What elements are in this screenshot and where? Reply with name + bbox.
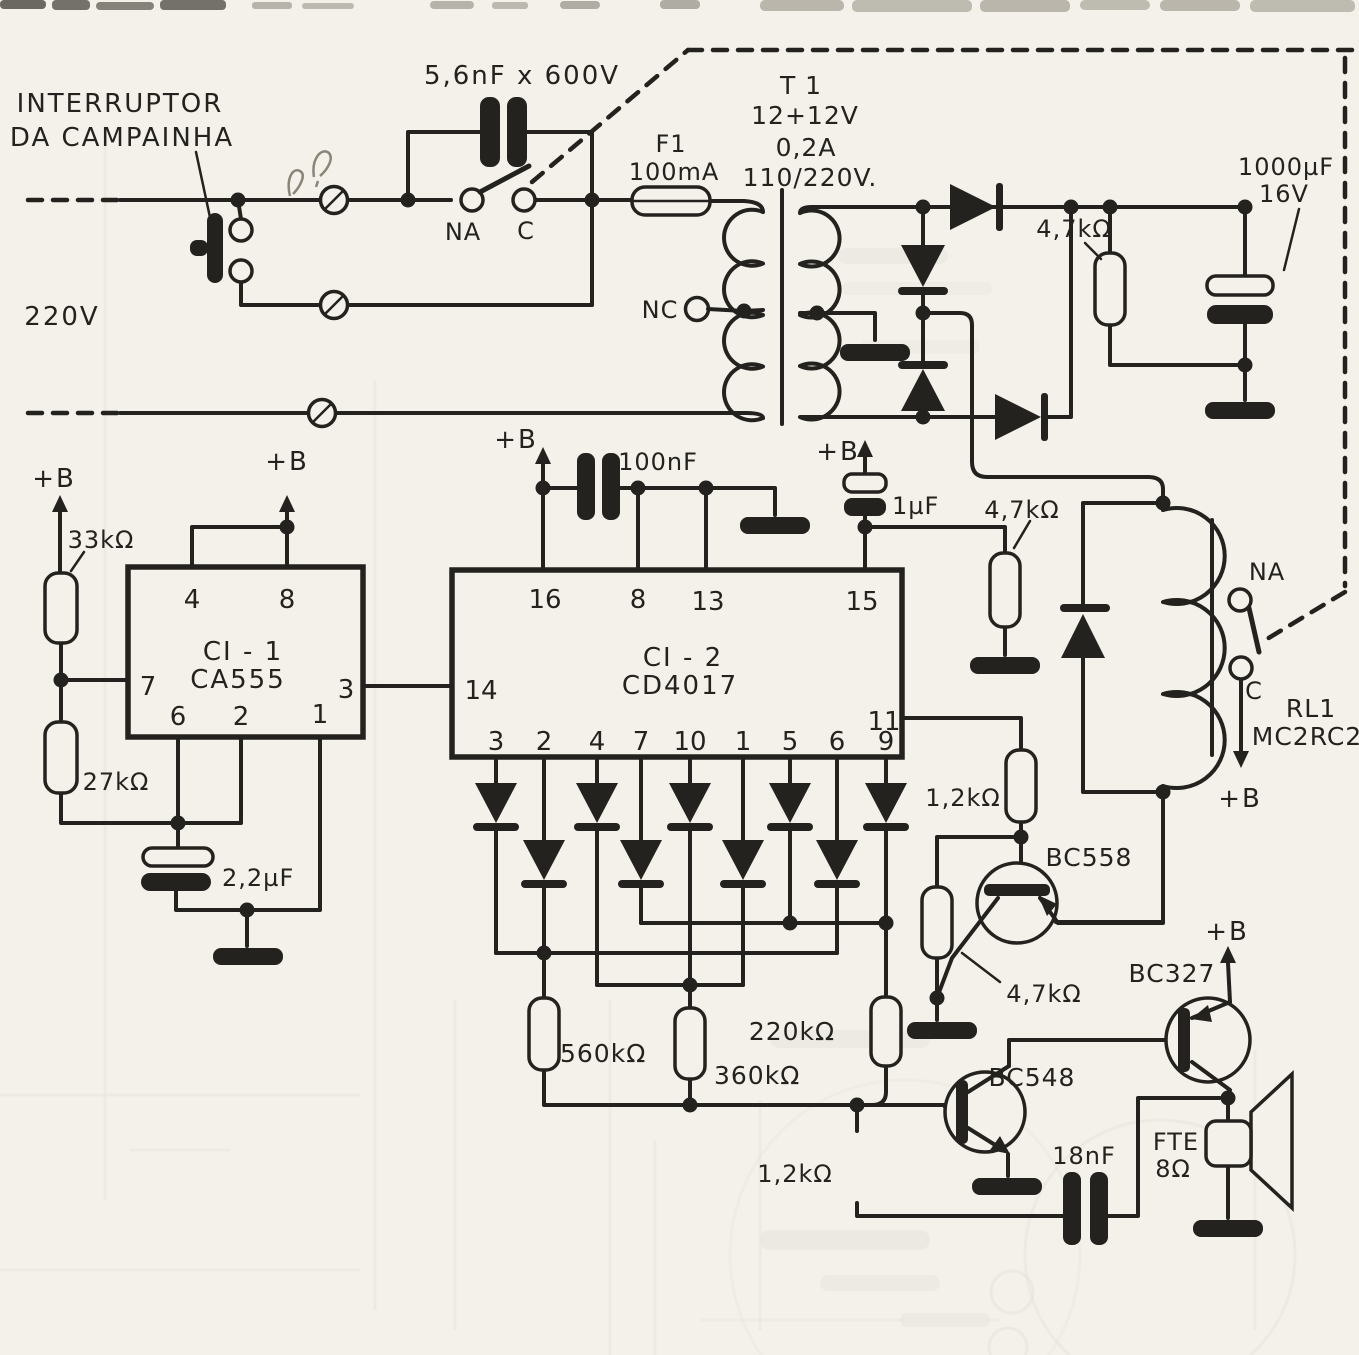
resistor-4k7-bias-label: 4,7kΩ: [1006, 980, 1081, 1008]
bc548-label: BC548: [989, 1063, 1076, 1092]
relay-contact-mirror-switch: [461, 166, 535, 211]
transformer-secondary-label: 12+12V: [751, 101, 859, 130]
ic1-designator-label: CI - 1: [203, 637, 283, 667]
coupling-capacitor: [1063, 1172, 1108, 1245]
doorbell-circuit-schematic: INTERRUPTOR DA CAMPAINHA 220V 5,6nF x 60…: [0, 0, 1359, 1355]
ic1-part-label: CA555: [190, 665, 286, 695]
bell-switch-label-line2: DA CAMPAINHA: [10, 123, 234, 153]
ic1-pin3: 3: [338, 675, 355, 705]
reset-capacitor: [844, 474, 886, 516]
coupling-cap-label: 18nF: [1052, 1142, 1116, 1170]
relay-na-label: NA: [1249, 558, 1285, 586]
supply-label: +B: [494, 425, 538, 455]
resistor-220k: [871, 997, 901, 1066]
ic1-pin7: 7: [140, 672, 157, 702]
resistor-27k-label: 27kΩ: [83, 768, 150, 796]
resistor-1k2-relay-label: 1,2kΩ: [925, 784, 1000, 812]
ic2-pin14: 14: [464, 676, 497, 706]
decoupling-cap-label: 100nF: [618, 448, 698, 476]
counter-section: CI - 2 CD4017 16 8 13 15 14 11 3 2 4 7 1…: [452, 425, 1060, 757]
rectifier-diode: [950, 184, 996, 230]
relay-part-label: MC2RC2: [1252, 722, 1359, 751]
ic1-pin8: 8: [279, 585, 296, 615]
suppression-cap-label: 5,6nF x 600V: [424, 61, 620, 91]
supply-label: +B: [1205, 917, 1249, 947]
ground-bar: [970, 657, 1040, 674]
relay-contact-c: [1230, 657, 1252, 679]
screw-terminal: [321, 292, 348, 319]
resistor-27k: [45, 722, 77, 793]
ic2-pin2: 2: [536, 727, 553, 757]
resistor-1k2-relay: [1006, 750, 1036, 822]
supply-arrow: [279, 495, 295, 512]
label-callout: [71, 552, 84, 571]
supply-label: +B: [265, 447, 309, 477]
transistor-bc327: [1166, 998, 1250, 1098]
relay-c-label: C: [1245, 677, 1263, 705]
ic1-pin6: 6: [170, 702, 187, 732]
speaker-impedance-label: 8Ω: [1155, 1155, 1191, 1183]
fuse: [632, 187, 710, 215]
ic2-part-label: CD4017: [622, 671, 738, 701]
ground-bar: [1193, 1220, 1263, 1237]
mains-input-section: INTERRUPTOR DA CAMPAINHA 220V 5,6nF x 60…: [10, 61, 763, 427]
label-callout: [196, 152, 211, 222]
switch-c-label: C: [517, 217, 535, 245]
label-callout: [962, 953, 1000, 982]
ic2-pin3: 3: [488, 727, 505, 757]
pencil-scribble: [289, 170, 303, 196]
supply-arrow: [52, 495, 68, 512]
resistor-4k7-bias: [922, 887, 952, 958]
bc558-label: BC558: [1046, 843, 1133, 872]
bell-pushbutton: [190, 213, 252, 283]
resistor-220k-label: 220kΩ: [749, 1017, 835, 1046]
filter-cap-voltage-label: 16V: [1259, 180, 1309, 208]
clamp-diode-lower: [901, 369, 945, 411]
resistor-560k: [529, 998, 559, 1070]
ic2-pin10: 10: [673, 727, 706, 757]
ic2-pin13: 13: [691, 587, 724, 617]
wires: [937, 503, 1241, 1020]
ic1-pin4: 4: [184, 585, 201, 615]
ic1-pin1: 1: [312, 700, 329, 730]
ic1-pin2: 2: [233, 702, 250, 732]
ic2-designator-label: CI - 2: [643, 643, 723, 673]
pencil-scribble: [313, 151, 330, 187]
bleeder-resistor: [1095, 253, 1125, 325]
filter-cap-label: 1000µF: [1238, 153, 1334, 181]
ground-bar: [840, 344, 910, 361]
reset-resistor: [990, 553, 1020, 627]
ic2-pin15: 15: [845, 587, 878, 617]
ic2-pin5: 5: [782, 727, 799, 757]
top-edge-print-remnants: [0, 0, 1355, 12]
relay-coil: [1163, 508, 1225, 788]
ic2-pin9: 9: [878, 727, 895, 757]
ic2-pin4: 4: [589, 727, 606, 757]
resistor-33k: [45, 573, 77, 643]
timing-capacitor: [141, 848, 213, 891]
label-callout: [1284, 209, 1299, 270]
ic2-pin16: 16: [528, 585, 561, 615]
ground-bar: [740, 517, 810, 534]
bc327-label: BC327: [1129, 959, 1216, 988]
speaker-label: FTE: [1153, 1128, 1199, 1156]
clamp-diode-upper: [901, 245, 945, 287]
timing-cap-label: 2,2µF: [222, 864, 294, 892]
resistor-1k2-audio-label: 1,2kΩ: [757, 1160, 832, 1188]
ground-bar: [213, 948, 283, 965]
fuse-rating-label: 100mA: [629, 158, 720, 186]
ic2-pin8: 8: [630, 585, 647, 615]
ic2-pin7: 7: [633, 727, 650, 757]
fuse-name-label: F1: [655, 130, 686, 158]
relay-designator-label: RL1: [1286, 694, 1336, 723]
ground-bar: [972, 1178, 1042, 1195]
resistor-560k-label: 560kΩ: [560, 1039, 646, 1068]
transformer-name-label: T 1: [779, 71, 822, 100]
matrix-diode: [473, 783, 909, 831]
suppression-capacitor: [480, 97, 527, 167]
nc-tap-terminal: [686, 298, 709, 321]
speaker: [1206, 1074, 1292, 1208]
flyback-diode: [1060, 604, 1110, 658]
resistor-360k-label: 360kΩ: [714, 1061, 800, 1090]
rectifier-diode: [995, 394, 1041, 440]
bleeder-resistor-label: 4,7kΩ: [1036, 215, 1111, 243]
resistor-33k-label: 33kΩ: [68, 526, 135, 554]
ground-bar: [1205, 402, 1275, 419]
mains-voltage-label: 220V: [24, 302, 99, 332]
transformer-current-label: 0,2A: [776, 133, 837, 162]
amplifier-section: BC548 BC327 +B 1,2kΩ 18nF FTE 8Ω: [757, 917, 1292, 1245]
relay-blade: [1249, 608, 1259, 652]
nc-tap-label: NC: [642, 296, 679, 324]
supply-label: +B: [1218, 784, 1262, 814]
screw-terminal: [309, 400, 336, 427]
oscillator-section: CI - 1 CA555 4 8 7 3 6 2 1 +B +B 33kΩ 27…: [32, 447, 452, 965]
relay-rl1: [1163, 508, 1259, 788]
resistor-360k: [675, 1008, 705, 1079]
supply-label: +B: [32, 464, 76, 494]
scanned-schematic-page: INTERRUPTOR DA CAMPAINHA 220V 5,6nF x 60…: [0, 0, 1359, 1355]
reset-resistor-label: 4,7kΩ: [984, 496, 1059, 524]
switch-na-label: NA: [445, 218, 481, 246]
bell-switch-label-line1: INTERRUPTOR: [17, 89, 224, 119]
supply-arrow-down: [1233, 751, 1249, 768]
screw-terminal: [321, 187, 348, 214]
supply-arrow: [1220, 946, 1236, 963]
ground-bar: [907, 1022, 977, 1039]
transformer-primary-label: 110/220V.: [743, 163, 878, 192]
label-callout: [1014, 521, 1030, 548]
reset-cap-label: 1µF: [892, 492, 939, 520]
filter-capacitor: [1207, 276, 1273, 324]
supply-label: +B: [816, 437, 860, 467]
label-callout: [1085, 243, 1101, 259]
ic2-pin1: 1: [735, 727, 752, 757]
ic2-pin6: 6: [829, 727, 846, 757]
decoupling-capacitor: [577, 453, 620, 520]
